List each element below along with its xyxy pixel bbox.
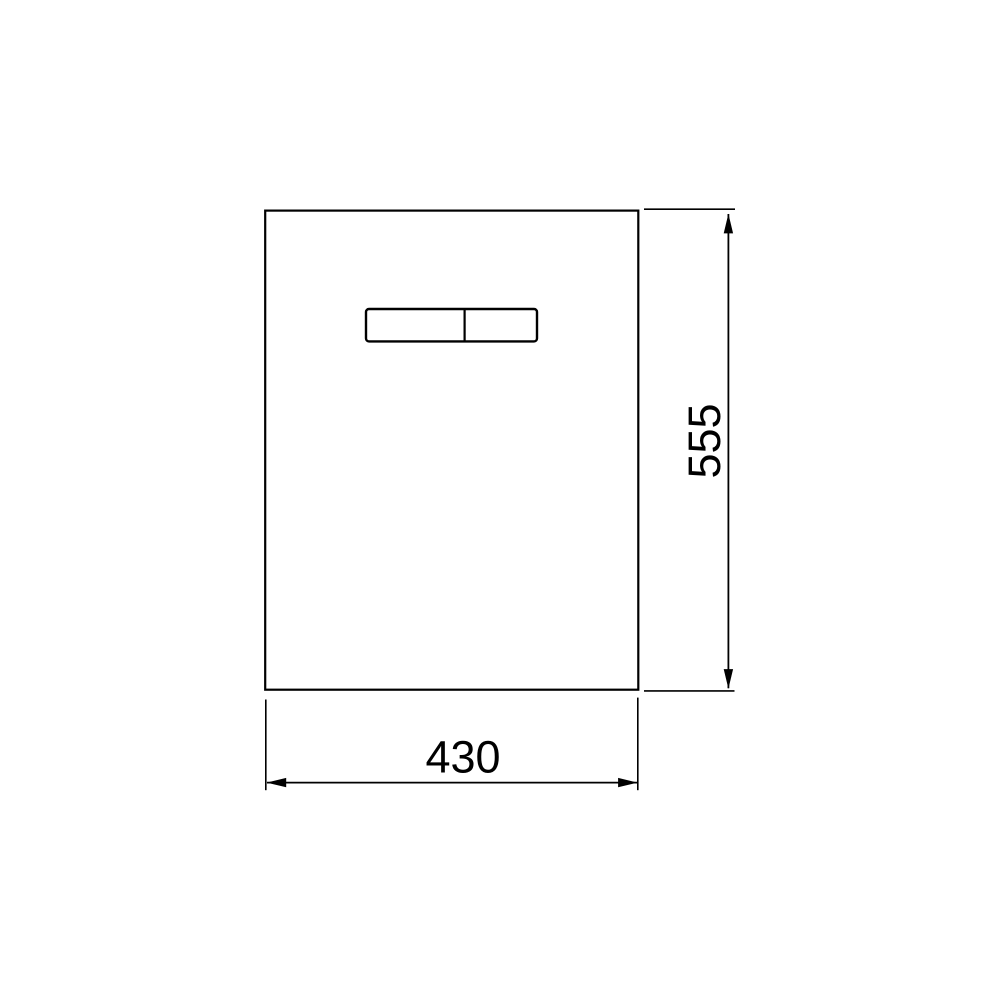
svg-text:430: 430 [425,732,500,783]
svg-text:555: 555 [679,403,730,478]
